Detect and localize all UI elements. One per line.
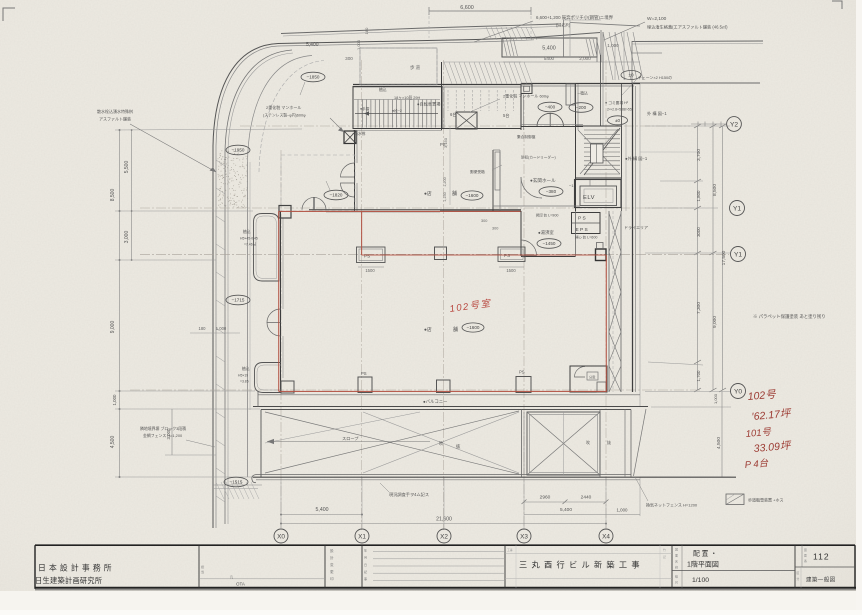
svg-text:7,300: 7,300 bbox=[696, 302, 702, 314]
svg-text:植込: 植込 bbox=[243, 229, 251, 234]
svg-text:OTA: OTA bbox=[236, 582, 245, 587]
svg-text:X4: X4 bbox=[602, 533, 610, 540]
svg-text:3,000: 3,000 bbox=[124, 231, 130, 244]
svg-text:縮: 縮 bbox=[675, 574, 678, 579]
svg-text:2¹×2.8+5.88>55: 2¹×2.8+5.88>55 bbox=[607, 108, 632, 112]
svg-text:P 4台: P 4台 bbox=[744, 457, 769, 471]
svg-text:植込: 植込 bbox=[379, 87, 387, 92]
svg-text:300: 300 bbox=[481, 219, 487, 223]
svg-text:面: 面 bbox=[675, 554, 678, 558]
svg-text:18ヶ×10段 29H: 18ヶ×10段 29H bbox=[394, 95, 421, 100]
svg-text:日: 日 bbox=[364, 563, 367, 567]
svg-text:当: 当 bbox=[201, 569, 204, 574]
svg-text:舗: 舗 bbox=[452, 190, 457, 197]
svg-text:●手摺: ●手摺 bbox=[360, 106, 370, 111]
svg-text:1/100: 1/100 bbox=[692, 577, 709, 584]
svg-text:3000: 3000 bbox=[696, 227, 701, 237]
svg-text:=7.46㎡: =7.46㎡ bbox=[244, 242, 257, 247]
svg-text:180: 180 bbox=[199, 326, 207, 331]
svg-text:P S: P S bbox=[578, 216, 586, 222]
svg-text:Y2: Y2 bbox=[730, 122, 738, 129]
svg-text:● ゴミ置場 H²: ● ゴミ置場 H² bbox=[605, 100, 629, 105]
svg-text:Y0: Y0 bbox=[734, 388, 742, 395]
svg-text:−200: −200 bbox=[576, 105, 587, 110]
svg-text:●玄関ホール: ●玄関ホール bbox=[530, 177, 556, 184]
svg-text:9,000: 9,000 bbox=[110, 321, 116, 334]
svg-text:吹: 吹 bbox=[586, 439, 590, 445]
svg-text:分: 分 bbox=[797, 577, 800, 581]
svg-text:180: 180 bbox=[364, 27, 369, 34]
svg-text:101号: 101号 bbox=[745, 427, 772, 440]
svg-text:●外 構 図−1: ●外 構 図−1 bbox=[625, 155, 648, 162]
svg-text:6台: 6台 bbox=[450, 111, 457, 118]
svg-text:月: 月 bbox=[364, 556, 367, 560]
svg-text:112: 112 bbox=[813, 552, 830, 562]
svg-text:−1450: −1450 bbox=[543, 241, 556, 246]
svg-text:記: 記 bbox=[663, 555, 666, 559]
svg-text:金網フェンス H=1,200: 金網フェンス H=1,200 bbox=[143, 433, 183, 438]
svg-text:番: 番 bbox=[804, 559, 807, 563]
svg-text:4,500: 4,500 bbox=[110, 436, 116, 449]
svg-text:−1715: −1715 bbox=[232, 298, 245, 303]
svg-text:名: 名 bbox=[675, 559, 678, 564]
svg-text:植込: 植込 bbox=[242, 366, 250, 371]
svg-text:埋込潅生格蓋(エアスファルト舗装 (46.5㎡): 埋込潅生格蓋(エアスファルト舗装 (46.5㎡) bbox=[647, 24, 728, 31]
svg-text:2960: 2960 bbox=[540, 495, 551, 501]
svg-text:8,500: 8,500 bbox=[712, 184, 718, 196]
svg-text:1,150: 1,150 bbox=[443, 192, 447, 202]
svg-text:1500: 1500 bbox=[365, 268, 375, 273]
svg-text:5,400: 5,400 bbox=[306, 42, 319, 48]
svg-text:9,000: 9,000 bbox=[712, 316, 718, 328]
svg-text:掃シ台 L=600: 掃シ台 L=600 bbox=[575, 235, 597, 240]
svg-text:印: 印 bbox=[330, 576, 334, 581]
svg-text:(縁石R): (縁石R) bbox=[556, 22, 571, 29]
svg-text:設: 設 bbox=[330, 548, 334, 553]
svg-text:尺: 尺 bbox=[675, 581, 678, 585]
svg-text:2440: 2440 bbox=[581, 495, 592, 501]
svg-text:※ パラペット保護塗装 あと塗り残り: ※ パラペット保護塗装 あと塗り残り bbox=[753, 313, 826, 320]
svg-text:±0: ±0 bbox=[628, 73, 634, 78]
svg-text:変: 変 bbox=[330, 562, 334, 567]
svg-text:5台: 5台 bbox=[503, 112, 510, 119]
svg-text:●店: ●店 bbox=[424, 326, 432, 333]
svg-text:配 置 ・: 配 置 ・ bbox=[693, 550, 717, 558]
svg-text:PS: PS bbox=[519, 370, 525, 375]
svg-text:3,150: 3,150 bbox=[443, 137, 448, 148]
svg-text:歩 道: 歩 道 bbox=[410, 64, 421, 71]
svg-text:1,800: 1,800 bbox=[696, 190, 701, 202]
svg-text:分電: 分電 bbox=[589, 374, 596, 379]
svg-text:−1850: −1850 bbox=[307, 75, 320, 80]
svg-text:郵便受箱: 郵便受箱 bbox=[470, 169, 485, 174]
svg-text:H5×45-0.45: H5×45-0.45 bbox=[240, 237, 258, 241]
svg-text:換気ネットフェンス H=1200: 換気ネットフェンス H=1200 bbox=[646, 502, 698, 508]
svg-text:外 構 図−1: 外 構 図−1 bbox=[647, 110, 667, 117]
svg-text:担: 担 bbox=[201, 564, 204, 569]
svg-text:歩道融雪装置 +ホス: 歩道融雪装置 +ホス bbox=[748, 497, 783, 503]
svg-text:1,200: 1,200 bbox=[443, 177, 447, 187]
svg-text:5,400: 5,400 bbox=[542, 46, 556, 52]
svg-text:●バルコニー: ●バルコニー bbox=[423, 399, 448, 404]
svg-text:102号: 102号 bbox=[747, 389, 776, 403]
svg-text:5,400: 5,400 bbox=[560, 507, 572, 513]
svg-text:ELV: ELV bbox=[583, 195, 595, 201]
svg-text:図: 図 bbox=[804, 548, 807, 552]
svg-text:6,600+1,200 辰奔ポリチ小(鋼管)ニ境界: 6,600+1,200 辰奔ポリチ小(鋼管)ニ境界 bbox=[536, 14, 614, 21]
svg-text:チェーン×2 H150の: チェーン×2 H150の bbox=[638, 75, 672, 80]
svg-text:6,600: 6,600 bbox=[460, 5, 474, 11]
svg-text:記: 記 bbox=[364, 569, 367, 574]
svg-text:(ステンレス製−φ円)600φ: (ステンレス製−φ円)600φ bbox=[263, 113, 306, 118]
svg-text:掲示台 L=900: 掲示台 L=900 bbox=[536, 213, 558, 218]
svg-text:工事: 工事 bbox=[507, 548, 513, 552]
svg-text:1,000: 1,000 bbox=[112, 394, 117, 406]
svg-text:称: 称 bbox=[675, 565, 678, 570]
svg-text:300: 300 bbox=[345, 56, 353, 61]
svg-text:1,700: 1,700 bbox=[696, 370, 701, 382]
svg-text:抜: 抜 bbox=[607, 439, 611, 445]
svg-text:建築一般図: 建築一般図 bbox=[806, 576, 836, 584]
svg-text:現況調査手ヲ4ム記ス: 現況調査手ヲ4ム記ス bbox=[389, 491, 429, 498]
svg-text:−380: −380 bbox=[546, 189, 557, 194]
svg-text:年: 年 bbox=[364, 548, 367, 553]
svg-text:事: 事 bbox=[364, 576, 367, 581]
svg-text:区: 区 bbox=[797, 571, 800, 575]
svg-text:1,000: 1,000 bbox=[713, 393, 718, 404]
svg-text:1500: 1500 bbox=[506, 268, 516, 273]
svg-text:Y1: Y1 bbox=[734, 252, 742, 259]
svg-text:1階平面図: 1階平面図 bbox=[687, 560, 719, 569]
svg-text:300: 300 bbox=[492, 227, 498, 231]
svg-text:=3.85: =3.85 bbox=[240, 380, 249, 384]
svg-text:1,000: 1,000 bbox=[607, 43, 619, 48]
svg-text:1,000: 1,000 bbox=[216, 326, 227, 331]
svg-text:−400: −400 bbox=[545, 105, 556, 110]
svg-text:−1600: −1600 bbox=[466, 193, 479, 198]
svg-text:─植込: ─植込 bbox=[577, 91, 588, 96]
svg-text:X0: X0 bbox=[277, 533, 285, 540]
svg-text:PS: PS bbox=[364, 254, 370, 259]
svg-text:1,000: 1,000 bbox=[617, 508, 629, 513]
svg-text:5,400: 5,400 bbox=[316, 507, 329, 513]
svg-text:X1: X1 bbox=[358, 533, 366, 540]
svg-text:面: 面 bbox=[804, 554, 807, 558]
svg-text:X3: X3 bbox=[520, 533, 528, 540]
svg-text:−1600: −1600 bbox=[467, 325, 480, 330]
svg-text:−1515: −1515 bbox=[230, 480, 243, 485]
svg-text:舗: 舗 bbox=[453, 326, 458, 333]
svg-text:凡: 凡 bbox=[230, 575, 233, 579]
svg-text:5,500: 5,500 bbox=[124, 161, 130, 174]
svg-text:±0: ±0 bbox=[615, 118, 621, 123]
svg-text:日生建築計画研究所: 日生建築計画研究所 bbox=[35, 576, 102, 585]
svg-text:アスファルト舗装: アスファルト舗装 bbox=[99, 116, 131, 122]
svg-text:ドライエリア: ドライエリア bbox=[624, 224, 648, 230]
svg-text:5400: 5400 bbox=[544, 56, 555, 61]
svg-text:PS: PS bbox=[361, 371, 367, 376]
svg-text:●自転車置場: ●自転車置場 bbox=[417, 101, 441, 108]
svg-text:計: 計 bbox=[330, 555, 334, 560]
svg-text:抜: 抜 bbox=[456, 443, 461, 450]
svg-text:−1: −1 bbox=[569, 183, 574, 188]
svg-text:更: 更 bbox=[330, 569, 334, 574]
svg-text:図: 図 bbox=[675, 548, 678, 552]
svg-text:●段−2: ●段−2 bbox=[392, 108, 402, 113]
svg-text:Y1: Y1 bbox=[733, 206, 741, 213]
svg-text:8,500: 8,500 bbox=[110, 189, 116, 202]
svg-text:●店: ●店 bbox=[424, 190, 432, 197]
svg-text:X2: X2 bbox=[440, 533, 448, 540]
svg-text:2,000: 2,000 bbox=[579, 56, 591, 61]
svg-text:W=2,100: W=2,100 bbox=[647, 16, 667, 22]
svg-text:散水栓込湧水特殊桝: 散水栓込湧水特殊桝 bbox=[97, 108, 133, 114]
svg-text:吹: 吹 bbox=[439, 440, 444, 447]
svg-text:●湯沸室: ●湯沸室 bbox=[538, 229, 554, 236]
svg-text:E P S: E P S bbox=[576, 227, 588, 233]
svg-text:−1950: −1950 bbox=[232, 148, 245, 153]
svg-text:防犯(カードリーダー): 防犯(カードリーダー) bbox=[521, 155, 556, 160]
svg-text:H5×19: H5×19 bbox=[238, 374, 248, 378]
svg-text:2重化粧 マンホール 600φ: 2重化粧 マンホール 600φ bbox=[503, 93, 549, 99]
svg-text:2重化粧 マンホール: 2重化粧 マンホール bbox=[266, 104, 301, 110]
svg-text:3,700: 3,700 bbox=[696, 149, 702, 161]
svg-text:4,500: 4,500 bbox=[716, 437, 722, 449]
svg-text:17,500: 17,500 bbox=[721, 250, 727, 265]
svg-text:隣地境界塀 ブロック3段積: 隣地境界塀 ブロック3段積 bbox=[140, 426, 186, 431]
svg-text:日 本 設 計 事 務 所: 日 本 設 計 事 務 所 bbox=[38, 563, 112, 573]
svg-text:−1820: −1820 bbox=[330, 193, 343, 198]
svg-text:三丸酉行ビル新築工事: 三丸酉行ビル新築工事 bbox=[519, 560, 644, 570]
svg-text:集合制御盤: 集合制御盤 bbox=[517, 134, 536, 139]
svg-text:竹: 竹 bbox=[663, 548, 666, 552]
svg-text:+雨水桝: +雨水桝 bbox=[352, 131, 366, 136]
